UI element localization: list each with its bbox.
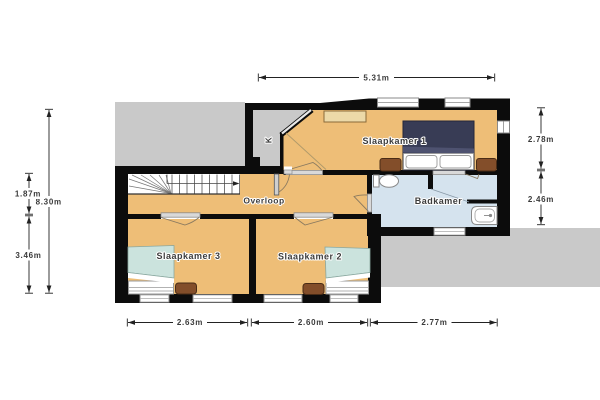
svg-text:K: K (265, 137, 274, 143)
svg-text:1.87m: 1.87m (15, 189, 41, 198)
svg-text:5.31m: 5.31m (363, 73, 389, 82)
svg-text:2.78m: 2.78m (528, 135, 554, 144)
svg-text:Slaapkamer 3: Slaapkamer 3 (156, 251, 220, 261)
svg-text:3.46m: 3.46m (15, 251, 41, 260)
svg-text:Slaapkamer 1: Slaapkamer 1 (362, 136, 426, 146)
svg-text:2.77m: 2.77m (421, 318, 447, 327)
svg-text:2.46m: 2.46m (528, 195, 554, 204)
svg-text:2.60m: 2.60m (298, 318, 324, 327)
svg-text:2.63m: 2.63m (177, 318, 203, 327)
svg-text:Slaapkamer 2: Slaapkamer 2 (278, 252, 342, 262)
svg-text:Badkamer: Badkamer (415, 196, 463, 206)
svg-text:Overloop: Overloop (243, 195, 284, 205)
